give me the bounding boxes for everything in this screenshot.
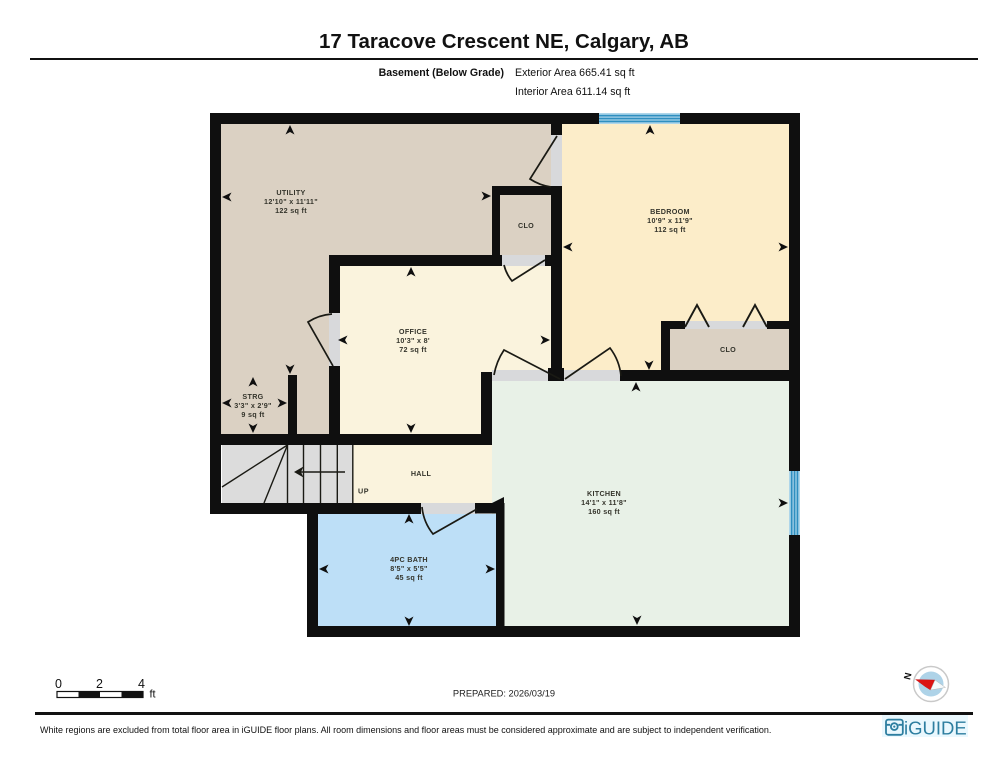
svg-text:BEDROOM: BEDROOM	[650, 207, 690, 216]
svg-text:122 sq ft: 122 sq ft	[275, 206, 307, 215]
svg-text:PREPARED: 2026/03/19: PREPARED: 2026/03/19	[453, 689, 555, 699]
svg-text:UTILITY: UTILITY	[276, 188, 305, 197]
svg-text:OFFICE: OFFICE	[399, 327, 427, 336]
svg-text:3'3" x 2'9": 3'3" x 2'9"	[234, 401, 272, 410]
svg-text:160 sq ft: 160 sq ft	[588, 507, 620, 516]
svg-text:2: 2	[96, 677, 103, 691]
svg-text:14'1" x 11'8": 14'1" x 11'8"	[581, 498, 627, 507]
svg-text:CLO: CLO	[720, 345, 736, 354]
svg-text:112 sq ft: 112 sq ft	[654, 225, 686, 234]
svg-text:N: N	[902, 672, 914, 681]
svg-text:10'9" x 11'9": 10'9" x 11'9"	[647, 216, 693, 225]
svg-text:HALL: HALL	[411, 469, 432, 478]
svg-text:0: 0	[55, 677, 62, 691]
svg-text:8'5" x 5'5": 8'5" x 5'5"	[390, 564, 428, 573]
svg-text:72 sq ft: 72 sq ft	[399, 345, 427, 354]
svg-text:CLO: CLO	[518, 221, 534, 230]
svg-text:ft: ft	[150, 689, 156, 701]
svg-text:STRG: STRG	[242, 392, 263, 401]
svg-text:45 sq ft: 45 sq ft	[395, 573, 423, 582]
svg-text:12'10" x 11'11": 12'10" x 11'11"	[264, 197, 318, 206]
svg-text:iGUIDE: iGUIDE	[904, 718, 967, 739]
svg-text:KITCHEN: KITCHEN	[587, 489, 621, 498]
svg-text:UP: UP	[358, 487, 369, 496]
svg-text:4: 4	[138, 677, 145, 691]
svg-text:10'3" x 8': 10'3" x 8'	[396, 336, 430, 345]
svg-text:9 sq ft: 9 sq ft	[241, 410, 265, 419]
svg-text:4PC BATH: 4PC BATH	[390, 555, 428, 564]
